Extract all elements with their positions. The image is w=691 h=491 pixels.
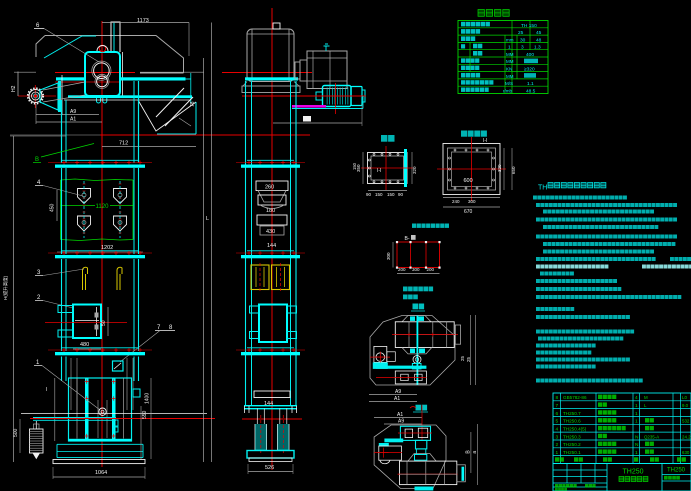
- svg-text:TH 150: TH 150: [521, 23, 537, 29]
- svg-text:300: 300: [468, 199, 476, 204]
- svg-text:150: 150: [387, 192, 395, 197]
- svg-text:TH250.6: TH250.6: [563, 419, 581, 424]
- svg-text:GB5782-86: GB5782-86: [563, 395, 587, 400]
- svg-text:1: 1: [556, 450, 559, 456]
- svg-text:TH250.1: TH250.1: [563, 450, 581, 455]
- svg-text:6: 6: [556, 411, 559, 417]
- svg-text:7: 7: [556, 403, 559, 409]
- svg-text:45: 45: [536, 30, 542, 36]
- svg-text:600: 600: [464, 178, 473, 184]
- svg-text:L0: L0: [682, 395, 687, 400]
- svg-text:M: M: [644, 395, 648, 400]
- svg-text:320: 320: [412, 166, 417, 174]
- svg-text:I: I: [46, 387, 47, 393]
- svg-text:a: a: [472, 451, 478, 454]
- svg-text:1: 1: [635, 411, 638, 417]
- svg-text:MM: MM: [506, 74, 514, 79]
- svg-text:25: 25: [518, 30, 524, 36]
- svg-text:25: 25: [466, 356, 471, 362]
- svg-text:TH250.4(5): TH250.4(5): [563, 427, 587, 432]
- svg-text:3: 3: [521, 45, 524, 51]
- svg-text:A9: A9: [395, 389, 401, 395]
- svg-text:260: 260: [265, 185, 274, 191]
- svg-text:1: 1: [508, 45, 511, 51]
- svg-text:B: B: [35, 157, 39, 163]
- svg-text:TH250: TH250: [622, 469, 643, 476]
- svg-text:TH250.7: TH250.7: [563, 411, 581, 416]
- svg-text:mm: mm: [506, 37, 514, 42]
- svg-text:5: 5: [556, 419, 559, 425]
- svg-text:450: 450: [50, 203, 56, 212]
- svg-text:532: 532: [682, 419, 690, 424]
- svg-text:300: 300: [412, 267, 420, 272]
- svg-text:1120: 1120: [96, 204, 110, 210]
- svg-text:B-: B-: [405, 236, 410, 242]
- svg-text:670: 670: [464, 209, 473, 215]
- svg-text:A1: A1: [394, 396, 400, 402]
- svg-text:630: 630: [682, 450, 690, 455]
- svg-text:MM: MM: [506, 52, 514, 57]
- svg-text:430: 430: [266, 229, 275, 235]
- svg-text:4: 4: [556, 427, 559, 433]
- svg-text:78: 78: [190, 101, 196, 107]
- svg-text:712: 712: [119, 141, 128, 147]
- svg-text:9.0: 9.0: [682, 403, 689, 408]
- svg-text:M/S: M/S: [505, 81, 513, 86]
- svg-text:30: 30: [520, 37, 526, 43]
- svg-text:1400: 1400: [145, 393, 151, 404]
- svg-text:500: 500: [13, 428, 19, 437]
- svg-text:A9: A9: [70, 109, 76, 115]
- svg-text:144: 144: [267, 243, 276, 249]
- svg-text:50: 50: [101, 320, 107, 326]
- svg-text:TH250: TH250: [667, 468, 686, 474]
- svg-text:48.5: 48.5: [526, 88, 536, 94]
- svg-text:1.3: 1.3: [534, 45, 541, 51]
- svg-text:r/mb: r/mb: [503, 88, 512, 93]
- svg-text:300: 300: [386, 252, 391, 260]
- svg-text:A9: A9: [398, 419, 404, 425]
- svg-text:1: 1: [635, 403, 638, 409]
- svg-text:L: L: [206, 216, 209, 222]
- svg-text:TH250.2: TH250.2: [563, 442, 581, 447]
- svg-text:200: 200: [427, 267, 435, 272]
- svg-text:24.2: 24.2: [682, 434, 691, 439]
- svg-text:90: 90: [398, 192, 404, 197]
- svg-text:H2: H2: [11, 85, 17, 92]
- svg-text:25: 25: [460, 355, 465, 361]
- svg-text:TH: TH: [538, 185, 547, 192]
- svg-text:400: 400: [526, 52, 534, 58]
- svg-text:N: N: [635, 442, 639, 448]
- svg-text:A1: A1: [397, 412, 403, 418]
- svg-text:8: 8: [556, 395, 559, 401]
- svg-text:550: 550: [142, 410, 148, 419]
- svg-text:TH250.3: TH250.3: [563, 434, 581, 439]
- svg-text:1: 1: [635, 419, 638, 425]
- svg-text:200: 200: [398, 267, 406, 272]
- svg-text:480: 480: [80, 342, 89, 348]
- svg-text:150: 150: [352, 162, 357, 170]
- svg-text:N: N: [635, 434, 639, 440]
- svg-text:A1: A1: [70, 117, 76, 123]
- svg-text:90: 90: [366, 192, 372, 197]
- svg-text:48: 48: [536, 37, 542, 43]
- svg-text:1: 1: [635, 450, 638, 456]
- svg-text:650: 650: [511, 166, 516, 174]
- svg-text:150: 150: [375, 192, 383, 197]
- svg-text:240: 240: [452, 199, 460, 204]
- svg-text:526: 526: [265, 465, 274, 471]
- svg-text:2: 2: [556, 442, 559, 448]
- svg-text:180: 180: [266, 208, 275, 214]
- svg-text:I-I: I-I: [377, 168, 381, 174]
- svg-text:320: 320: [497, 164, 502, 172]
- svg-text:H(提升高度): H(提升高度): [2, 275, 9, 300]
- svg-text:MM: MM: [506, 59, 514, 64]
- svg-text:1.1: 1.1: [527, 81, 534, 87]
- svg-text:≥320: ≥320: [524, 67, 535, 73]
- svg-text:Q235-A: Q235-A: [644, 434, 659, 439]
- svg-text:1064: 1064: [95, 470, 107, 476]
- svg-text:1202: 1202: [101, 245, 113, 251]
- svg-text:4: 4: [635, 395, 638, 401]
- svg-text:3: 3: [556, 434, 559, 440]
- svg-text:KN: KN: [506, 67, 512, 72]
- svg-text:1173: 1173: [137, 18, 149, 24]
